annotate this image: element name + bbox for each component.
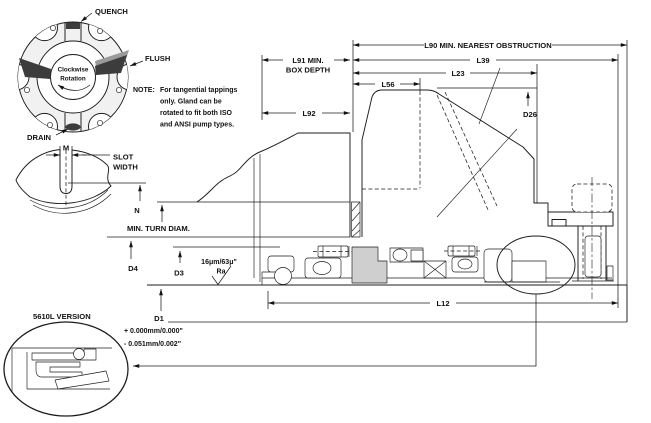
rotation-label-line2: Rotation bbox=[60, 76, 86, 83]
dim-l23: L23 bbox=[451, 69, 464, 78]
set-screw-right bbox=[444, 246, 481, 272]
seal-cartridge bbox=[262, 246, 612, 285]
spring-unit bbox=[390, 248, 423, 262]
gland-body-outline bbox=[362, 90, 548, 237]
min-turn-diam-label: MIN. TURN DIAM. bbox=[127, 224, 190, 233]
technical-drawing: Clockwise Rotation QUENCH FLUSH DRAIN NO… bbox=[0, 0, 651, 423]
version-label: 5610L VERSION bbox=[33, 312, 91, 321]
diameter-callouts: MIN. TURN DIAM. D4 D3 D1 + 0.000mm/0.000… bbox=[124, 205, 237, 348]
dim-l56: L56 bbox=[381, 80, 394, 89]
spring-retainer bbox=[352, 247, 387, 283]
version-detail-bubble bbox=[4, 322, 128, 416]
dim-l12: L12 bbox=[436, 299, 449, 308]
tangential-tapping-lines bbox=[437, 68, 517, 217]
dim-l91-line1: L91 MIN. bbox=[292, 56, 323, 65]
dim-l39: L39 bbox=[476, 56, 489, 65]
note-line3: rotated to fit both ISO bbox=[160, 110, 232, 117]
dim-m: M bbox=[63, 144, 69, 153]
seal-faces bbox=[424, 261, 446, 278]
dim-d4: D4 bbox=[128, 264, 138, 273]
surface-finish-value: 16μm/63μ" bbox=[201, 259, 237, 266]
note-label: NOTE: bbox=[133, 87, 155, 94]
note-line4: and ANSI pump types. bbox=[160, 122, 234, 129]
dim-d1: D1 bbox=[154, 314, 164, 323]
quench-arrow bbox=[81, 13, 92, 22]
quench-label: QUENCH bbox=[95, 7, 128, 16]
flush-arrow bbox=[130, 61, 143, 66]
dim-d26: D26 bbox=[523, 110, 537, 119]
drain-label: DRAIN bbox=[27, 133, 51, 142]
stuffing-box-bottom-wall bbox=[254, 154, 260, 282]
tolerance-plus: + 0.000mm/0.000" bbox=[124, 328, 183, 335]
rotation-label-line1: Clockwise bbox=[58, 67, 89, 74]
gland-gasket bbox=[352, 202, 361, 237]
gland-plate bbox=[548, 212, 613, 226]
note-line1: For tangential tappings bbox=[160, 87, 237, 94]
slot-width-line2: WIDTH bbox=[113, 163, 138, 172]
version-detail: 5610L VERSION bbox=[4, 312, 128, 416]
stuffing-box-outline bbox=[197, 133, 350, 237]
slot-width-line1: SLOT bbox=[113, 153, 134, 162]
gland-nose-blocks bbox=[484, 249, 560, 282]
surface-finish-ra: Ra bbox=[217, 269, 226, 276]
dim-l91-line2: BOX DEPTH bbox=[286, 66, 330, 75]
flush-label: FLUSH bbox=[145, 54, 170, 63]
dim-n: N bbox=[134, 206, 139, 215]
detail-leader-line bbox=[133, 294, 536, 366]
dim-d3: D3 bbox=[174, 269, 184, 278]
gland-end-view: Clockwise Rotation bbox=[3, 15, 143, 140]
slot-segment-body bbox=[16, 150, 111, 204]
dim-l92: L92 bbox=[302, 109, 315, 118]
gland-bolt-assembly bbox=[572, 177, 614, 299]
o-ring bbox=[275, 268, 292, 285]
set-screw-left bbox=[313, 246, 356, 257]
dim-l90: L90 MIN. NEAREST OBSTRUCTION bbox=[424, 41, 551, 50]
note-line2: only. Gland can be bbox=[160, 99, 222, 106]
note-block: NOTE: For tangential tappings only. Glan… bbox=[133, 87, 237, 129]
slot-segment-view: M SLOT WIDTH N bbox=[16, 144, 146, 216]
tolerance-minus: - 0.051mm/0.002" bbox=[124, 341, 181, 348]
